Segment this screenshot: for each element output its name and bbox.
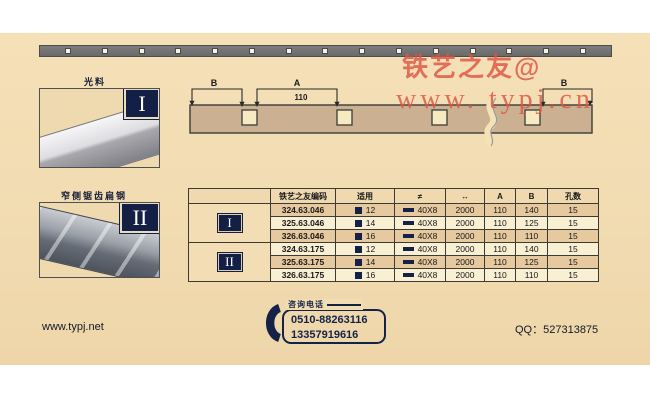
strip-hole xyxy=(287,49,291,53)
cell-length: 2000 xyxy=(446,217,485,230)
cell-a: 110 xyxy=(485,243,516,256)
header-length: ↔ xyxy=(446,189,485,204)
header-b: B xyxy=(516,189,548,204)
strip-hole xyxy=(176,49,180,53)
square-bar-icon xyxy=(355,259,362,266)
phone-label-rule xyxy=(327,304,361,306)
strip-hole xyxy=(66,49,70,53)
cell-a: 110 xyxy=(485,230,516,243)
cell-code: 324.63.175 xyxy=(271,243,336,256)
website-url: www.typj.net xyxy=(42,321,104,333)
photo2-numeral-badge: II xyxy=(120,202,160,233)
strip-hole xyxy=(581,49,585,53)
strip-hole xyxy=(544,49,548,53)
square-bar-icon xyxy=(355,233,362,240)
cell-holes: 15 xyxy=(548,230,599,243)
phone-numbers-box: 0510-88263116 13357919616 xyxy=(282,309,386,344)
cell-length: 2000 xyxy=(446,243,485,256)
dim-a-label: A xyxy=(294,78,301,88)
header-section: ≠ xyxy=(395,189,446,204)
photo2-label: 窄侧锯齿扁钢 xyxy=(61,189,127,202)
cell-fit: 14 xyxy=(336,256,395,269)
cell-section: 40X8 xyxy=(395,256,446,269)
strip-hole xyxy=(103,49,107,53)
cell-section: 40X8 xyxy=(395,230,446,243)
cell-length: 2000 xyxy=(446,269,485,282)
table-header-row: 铁艺之友编码 适用 ≠ ↔ A B 孔数 xyxy=(189,189,599,204)
flat-bar-icon xyxy=(403,247,414,251)
cell-code: 326.63.046 xyxy=(271,230,336,243)
phone-label: 咨询电话 xyxy=(286,299,363,310)
cell-b: 140 xyxy=(516,204,548,217)
cell-a: 110 xyxy=(485,217,516,230)
cell-code: 325.63.175 xyxy=(271,256,336,269)
photo1-numeral-badge: I xyxy=(124,88,160,119)
cell-holes: 15 xyxy=(548,256,599,269)
cell-length: 2000 xyxy=(446,256,485,269)
cell-section: 40X8 xyxy=(395,217,446,230)
header-a: A xyxy=(485,189,516,204)
header-holes: 孔数 xyxy=(548,189,599,204)
group-cell-1: I xyxy=(189,204,271,243)
phone-number-1: 0510-88263116 xyxy=(291,313,384,328)
cell-fit: 16 xyxy=(336,230,395,243)
cell-holes: 15 xyxy=(548,217,599,230)
square-bar-icon xyxy=(355,207,362,214)
group-cell-2: II xyxy=(189,243,271,282)
strip-hole xyxy=(140,49,144,53)
cell-length: 2000 xyxy=(446,204,485,217)
cell-fit: 12 xyxy=(336,204,395,217)
square-bar-icon xyxy=(355,272,362,279)
cell-code: 325.63.046 xyxy=(271,217,336,230)
group2-numeral-badge: II xyxy=(218,253,242,271)
table-row: I 324.63.046 12 40X8 2000 110 140 15 xyxy=(189,204,599,217)
cell-code: 326.63.175 xyxy=(271,269,336,282)
flat-bar-icon xyxy=(403,221,414,225)
cell-b: 125 xyxy=(516,217,548,230)
square-bar-icon xyxy=(355,246,362,253)
cell-fit: 12 xyxy=(336,243,395,256)
diagram-hole-2 xyxy=(337,110,352,125)
dim-b-left-line xyxy=(192,89,242,102)
catalog-page: 铁艺之友@ www. typj.cn 光料 I 窄侧锯齿扁钢 II B A 11… xyxy=(0,0,650,400)
cell-holes: 15 xyxy=(548,243,599,256)
spec-table: 铁艺之友编码 适用 ≠ ↔ A B 孔数 I 324.63.046 12 40X… xyxy=(188,188,599,282)
header-blank xyxy=(189,189,271,204)
qq-contact: QQ：527313875 xyxy=(515,321,598,337)
header-fit: 适用 xyxy=(336,189,395,204)
flat-bar-icon xyxy=(403,260,414,264)
cell-a: 110 xyxy=(485,256,516,269)
cell-section: 40X8 xyxy=(395,204,446,217)
cell-b: 140 xyxy=(516,243,548,256)
cell-holes: 15 xyxy=(548,269,599,282)
flat-bar-icon xyxy=(403,208,414,212)
photo2-frame: II xyxy=(39,202,160,278)
photo1-label: 光料 xyxy=(84,75,106,88)
cell-holes: 15 xyxy=(548,204,599,217)
group1-numeral-badge: I xyxy=(218,214,242,232)
strip-hole xyxy=(397,49,401,53)
cell-b: 110 xyxy=(516,269,548,282)
cell-b: 110 xyxy=(516,230,548,243)
flat-bar-icon xyxy=(403,234,414,238)
strip-hole xyxy=(213,49,217,53)
watermark-url-text: www. typj.cn xyxy=(396,84,594,116)
cell-section: 40X8 xyxy=(395,269,446,282)
cell-section: 40X8 xyxy=(395,243,446,256)
cell-fit: 14 xyxy=(336,217,395,230)
phone-label-text: 咨询电话 xyxy=(288,299,324,310)
phone-number-2: 13357919616 xyxy=(291,328,384,343)
cell-a: 110 xyxy=(485,204,516,217)
cell-a: 110 xyxy=(485,269,516,282)
flat-bar-icon xyxy=(403,273,414,277)
dim-b-left-label: B xyxy=(211,78,218,88)
strip-hole xyxy=(323,49,327,53)
strip-hole xyxy=(250,49,254,53)
watermark-brand-text: 铁艺之友@ xyxy=(402,47,541,84)
cell-b: 125 xyxy=(516,256,548,269)
dim-a-value: 110 xyxy=(295,93,308,102)
square-bar-icon xyxy=(355,220,362,227)
cell-length: 2000 xyxy=(446,230,485,243)
diagram-hole-1 xyxy=(242,110,257,125)
table-row: II 324.63.175 12 40X8 2000 110 140 15 xyxy=(189,243,599,256)
header-code: 铁艺之友编码 xyxy=(271,189,336,204)
phone-handset-icon xyxy=(262,303,282,343)
cell-code: 324.63.046 xyxy=(271,204,336,217)
strip-hole xyxy=(360,49,364,53)
cell-fit: 16 xyxy=(336,269,395,282)
photo1-frame: I xyxy=(39,88,160,168)
